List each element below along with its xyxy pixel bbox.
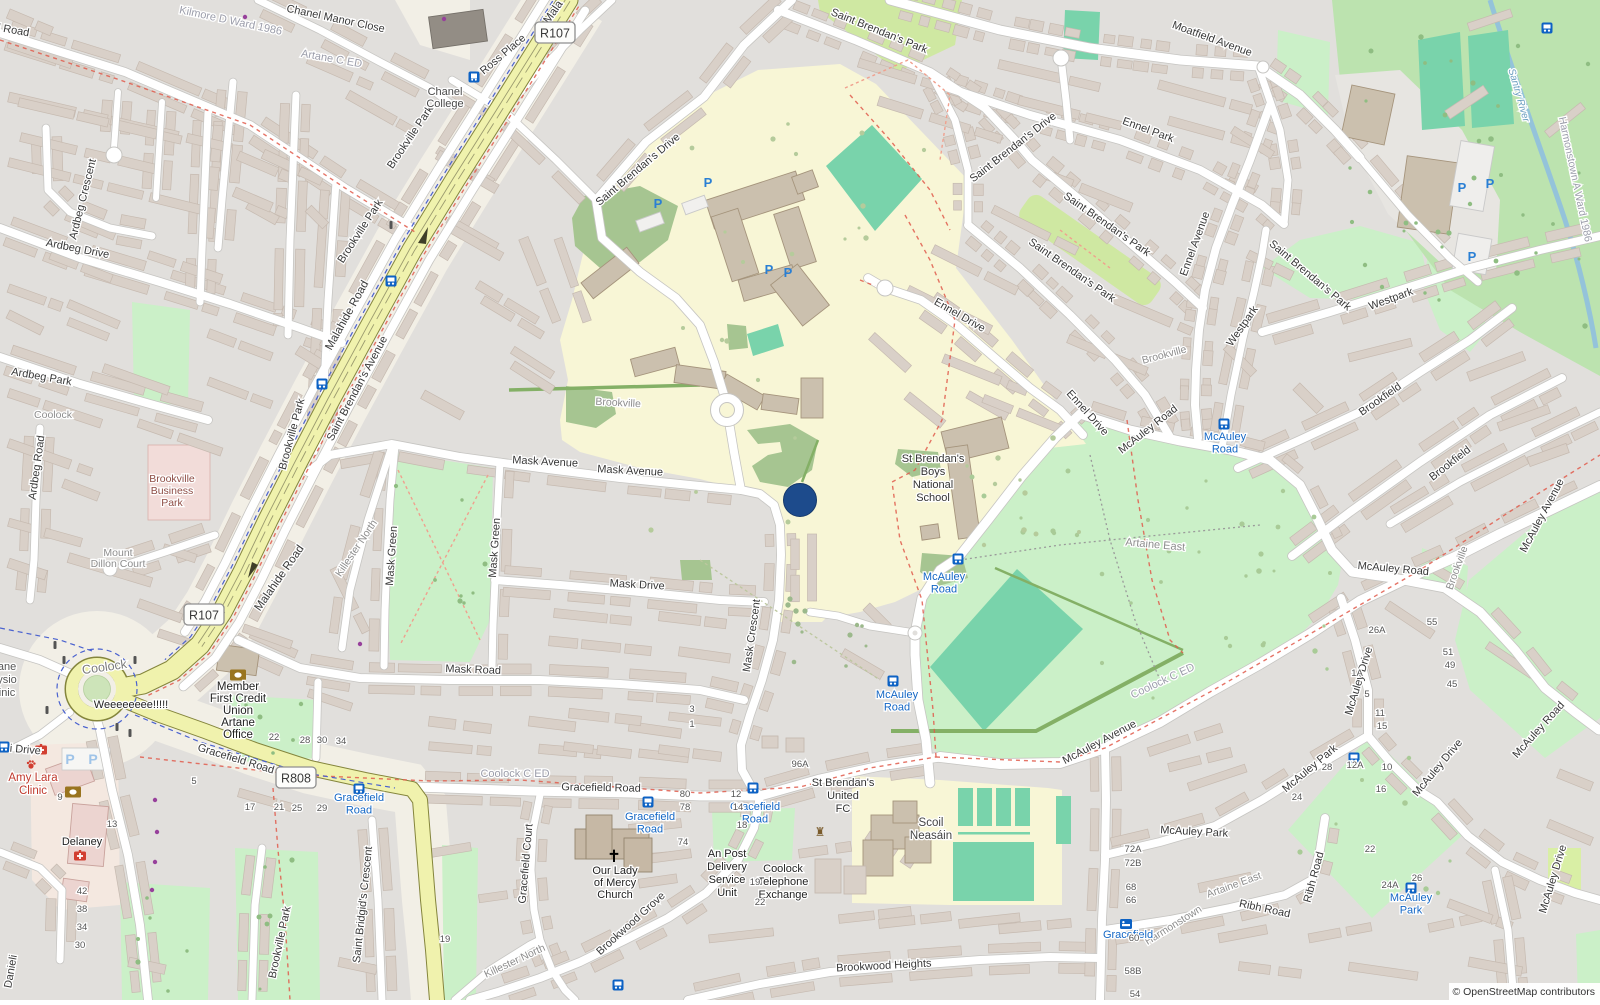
svg-text:9: 9 xyxy=(57,792,62,803)
svg-text:Boys: Boys xyxy=(921,466,946,478)
svg-text:An Post: An Post xyxy=(708,848,747,860)
svg-text:R107: R107 xyxy=(540,27,570,41)
svg-text:Scoil: Scoil xyxy=(919,817,944,829)
svg-text:Artane: Artane xyxy=(221,717,255,729)
svg-text:Gracefield: Gracefield xyxy=(334,792,384,804)
svg-text:28: 28 xyxy=(300,735,311,746)
svg-text:29: 29 xyxy=(317,803,328,814)
svg-text:Neasáin: Neasáin xyxy=(910,830,952,842)
svg-text:ane: ane xyxy=(0,661,16,673)
svg-text:College: College xyxy=(426,98,463,110)
svg-text:24A: 24A xyxy=(1382,880,1400,891)
svg-text:P: P xyxy=(1468,249,1477,264)
svg-text:Road: Road xyxy=(884,702,910,714)
svg-text:22: 22 xyxy=(755,897,766,908)
svg-text:National: National xyxy=(913,479,953,491)
svg-text:16: 16 xyxy=(1376,784,1387,795)
svg-text:P: P xyxy=(88,751,97,767)
svg-text:R808: R808 xyxy=(281,772,311,786)
svg-text:72A: 72A xyxy=(1125,844,1143,855)
svg-text:Unit: Unit xyxy=(717,887,737,899)
svg-text:Service: Service xyxy=(709,874,746,886)
svg-text:Brookville: Brookville xyxy=(595,396,641,410)
svg-text:1A: 1A xyxy=(1351,668,1363,679)
svg-text:✝: ✝ xyxy=(607,847,621,866)
svg-text:McAuley: McAuley xyxy=(876,689,919,701)
svg-text:Mask Road: Mask Road xyxy=(445,663,501,677)
svg-text:72B: 72B xyxy=(1125,858,1142,869)
svg-text:FC: FC xyxy=(836,803,851,815)
svg-text:Brookville: Brookville xyxy=(149,473,195,485)
svg-text:R107: R107 xyxy=(189,609,219,623)
svg-text:of Mercy: of Mercy xyxy=(594,877,637,889)
svg-text:Chanel: Chanel xyxy=(428,86,463,98)
svg-text:60: 60 xyxy=(1129,933,1140,944)
svg-text:17: 17 xyxy=(245,802,256,813)
svg-text:Church: Church xyxy=(597,889,632,901)
svg-text:34: 34 xyxy=(336,736,347,747)
svg-text:68: 68 xyxy=(1126,882,1137,893)
svg-text:McAuley: McAuley xyxy=(1204,431,1247,443)
svg-text:McAuley: McAuley xyxy=(1390,892,1433,904)
svg-text:14: 14 xyxy=(733,802,744,813)
svg-text:51: 51 xyxy=(1443,647,1454,658)
svg-text:Road: Road xyxy=(637,824,663,836)
svg-text:P: P xyxy=(765,262,774,277)
svg-text:St Brendan's: St Brendan's xyxy=(812,777,875,789)
svg-text:49: 49 xyxy=(1445,660,1456,671)
svg-text:P: P xyxy=(784,265,793,280)
svg-text:Office: Office xyxy=(223,729,253,741)
svg-text:Park: Park xyxy=(1400,905,1423,917)
svg-text:Delivery: Delivery xyxy=(707,861,747,873)
svg-text:11: 11 xyxy=(1375,708,1385,719)
svg-text:26: 26 xyxy=(1412,873,1423,884)
svg-text:Gracefield Road: Gracefield Road xyxy=(561,781,641,794)
svg-text:15: 15 xyxy=(1377,721,1388,732)
svg-text:30: 30 xyxy=(317,735,328,746)
svg-text:Delaney: Delaney xyxy=(62,836,103,848)
svg-text:22: 22 xyxy=(269,732,280,743)
svg-text:Park: Park xyxy=(161,497,183,509)
svg-text:P: P xyxy=(65,751,74,767)
svg-text:58B: 58B xyxy=(1125,966,1142,977)
svg-text:18: 18 xyxy=(737,820,748,831)
svg-text:42: 42 xyxy=(77,886,88,897)
svg-text:United: United xyxy=(827,790,859,802)
svg-text:Exchange: Exchange xyxy=(759,889,808,901)
svg-text:19: 19 xyxy=(750,877,761,888)
svg-text:26A: 26A xyxy=(1369,625,1387,636)
svg-text:21: 21 xyxy=(274,802,285,813)
svg-text:inic: inic xyxy=(0,687,16,699)
svg-text:Dillon Court: Dillon Court xyxy=(91,558,146,570)
svg-text:5: 5 xyxy=(191,776,196,787)
svg-text:80: 80 xyxy=(680,789,691,800)
svg-text:30: 30 xyxy=(75,940,86,951)
svg-text:♜: ♜ xyxy=(815,825,826,839)
svg-text:45: 45 xyxy=(1447,679,1458,690)
svg-text:12: 12 xyxy=(731,789,742,800)
svg-text:P: P xyxy=(704,175,713,190)
svg-text:Member: Member xyxy=(217,681,259,693)
svg-text:3: 3 xyxy=(689,704,694,715)
svg-text:38: 38 xyxy=(77,904,88,915)
svg-text:Road: Road xyxy=(346,805,372,817)
svg-text:Coolock C ED: Coolock C ED xyxy=(480,768,549,780)
svg-text:54: 54 xyxy=(1130,989,1141,1000)
svg-text:P: P xyxy=(1486,176,1495,191)
svg-text:55: 55 xyxy=(1427,617,1438,628)
svg-text:© OpenStreetMap contributors: © OpenStreetMap contributors xyxy=(1452,986,1595,998)
svg-text:School: School xyxy=(916,492,950,504)
svg-text:Business: Business xyxy=(151,485,194,497)
svg-text:Weeeeeeee!!!!!: Weeeeeeee!!!!! xyxy=(94,699,168,711)
svg-text:19: 19 xyxy=(440,934,451,945)
svg-text:5: 5 xyxy=(1364,689,1369,700)
svg-text:Road: Road xyxy=(1212,444,1238,456)
svg-text:P: P xyxy=(1458,180,1467,195)
svg-text:Road: Road xyxy=(931,584,957,596)
svg-text:Clinic: Clinic xyxy=(19,785,47,797)
svg-text:1: 1 xyxy=(689,719,694,730)
svg-text:P: P xyxy=(654,196,663,211)
svg-text:66: 66 xyxy=(1126,895,1137,906)
svg-text:First Credit: First Credit xyxy=(210,693,267,705)
svg-text:McAuley: McAuley xyxy=(923,571,966,583)
svg-text:Gracefield: Gracefield xyxy=(625,811,675,823)
svg-text:74: 74 xyxy=(678,837,689,848)
svg-text:24: 24 xyxy=(1292,792,1303,803)
svg-text:28: 28 xyxy=(1322,762,1333,773)
svg-text:Amy Lara: Amy Lara xyxy=(8,772,58,784)
svg-text:13: 13 xyxy=(107,819,118,830)
svg-text:St Brendan's: St Brendan's xyxy=(902,453,965,465)
svg-text:34: 34 xyxy=(77,922,88,933)
svg-text:Our Lady: Our Lady xyxy=(592,865,638,877)
svg-text:ysio: ysio xyxy=(0,674,17,686)
svg-text:10: 10 xyxy=(1382,762,1393,773)
svg-text:Coolock: Coolock xyxy=(763,863,803,875)
svg-text:22: 22 xyxy=(1365,844,1376,855)
svg-text:96A: 96A xyxy=(792,759,810,770)
svg-text:Union: Union xyxy=(223,705,253,717)
svg-text:12A: 12A xyxy=(1347,760,1365,771)
svg-text:25: 25 xyxy=(292,803,303,814)
svg-text:78: 78 xyxy=(680,802,691,813)
svg-text:Telephone: Telephone xyxy=(758,876,809,888)
svg-text:Coolock: Coolock xyxy=(34,409,73,421)
